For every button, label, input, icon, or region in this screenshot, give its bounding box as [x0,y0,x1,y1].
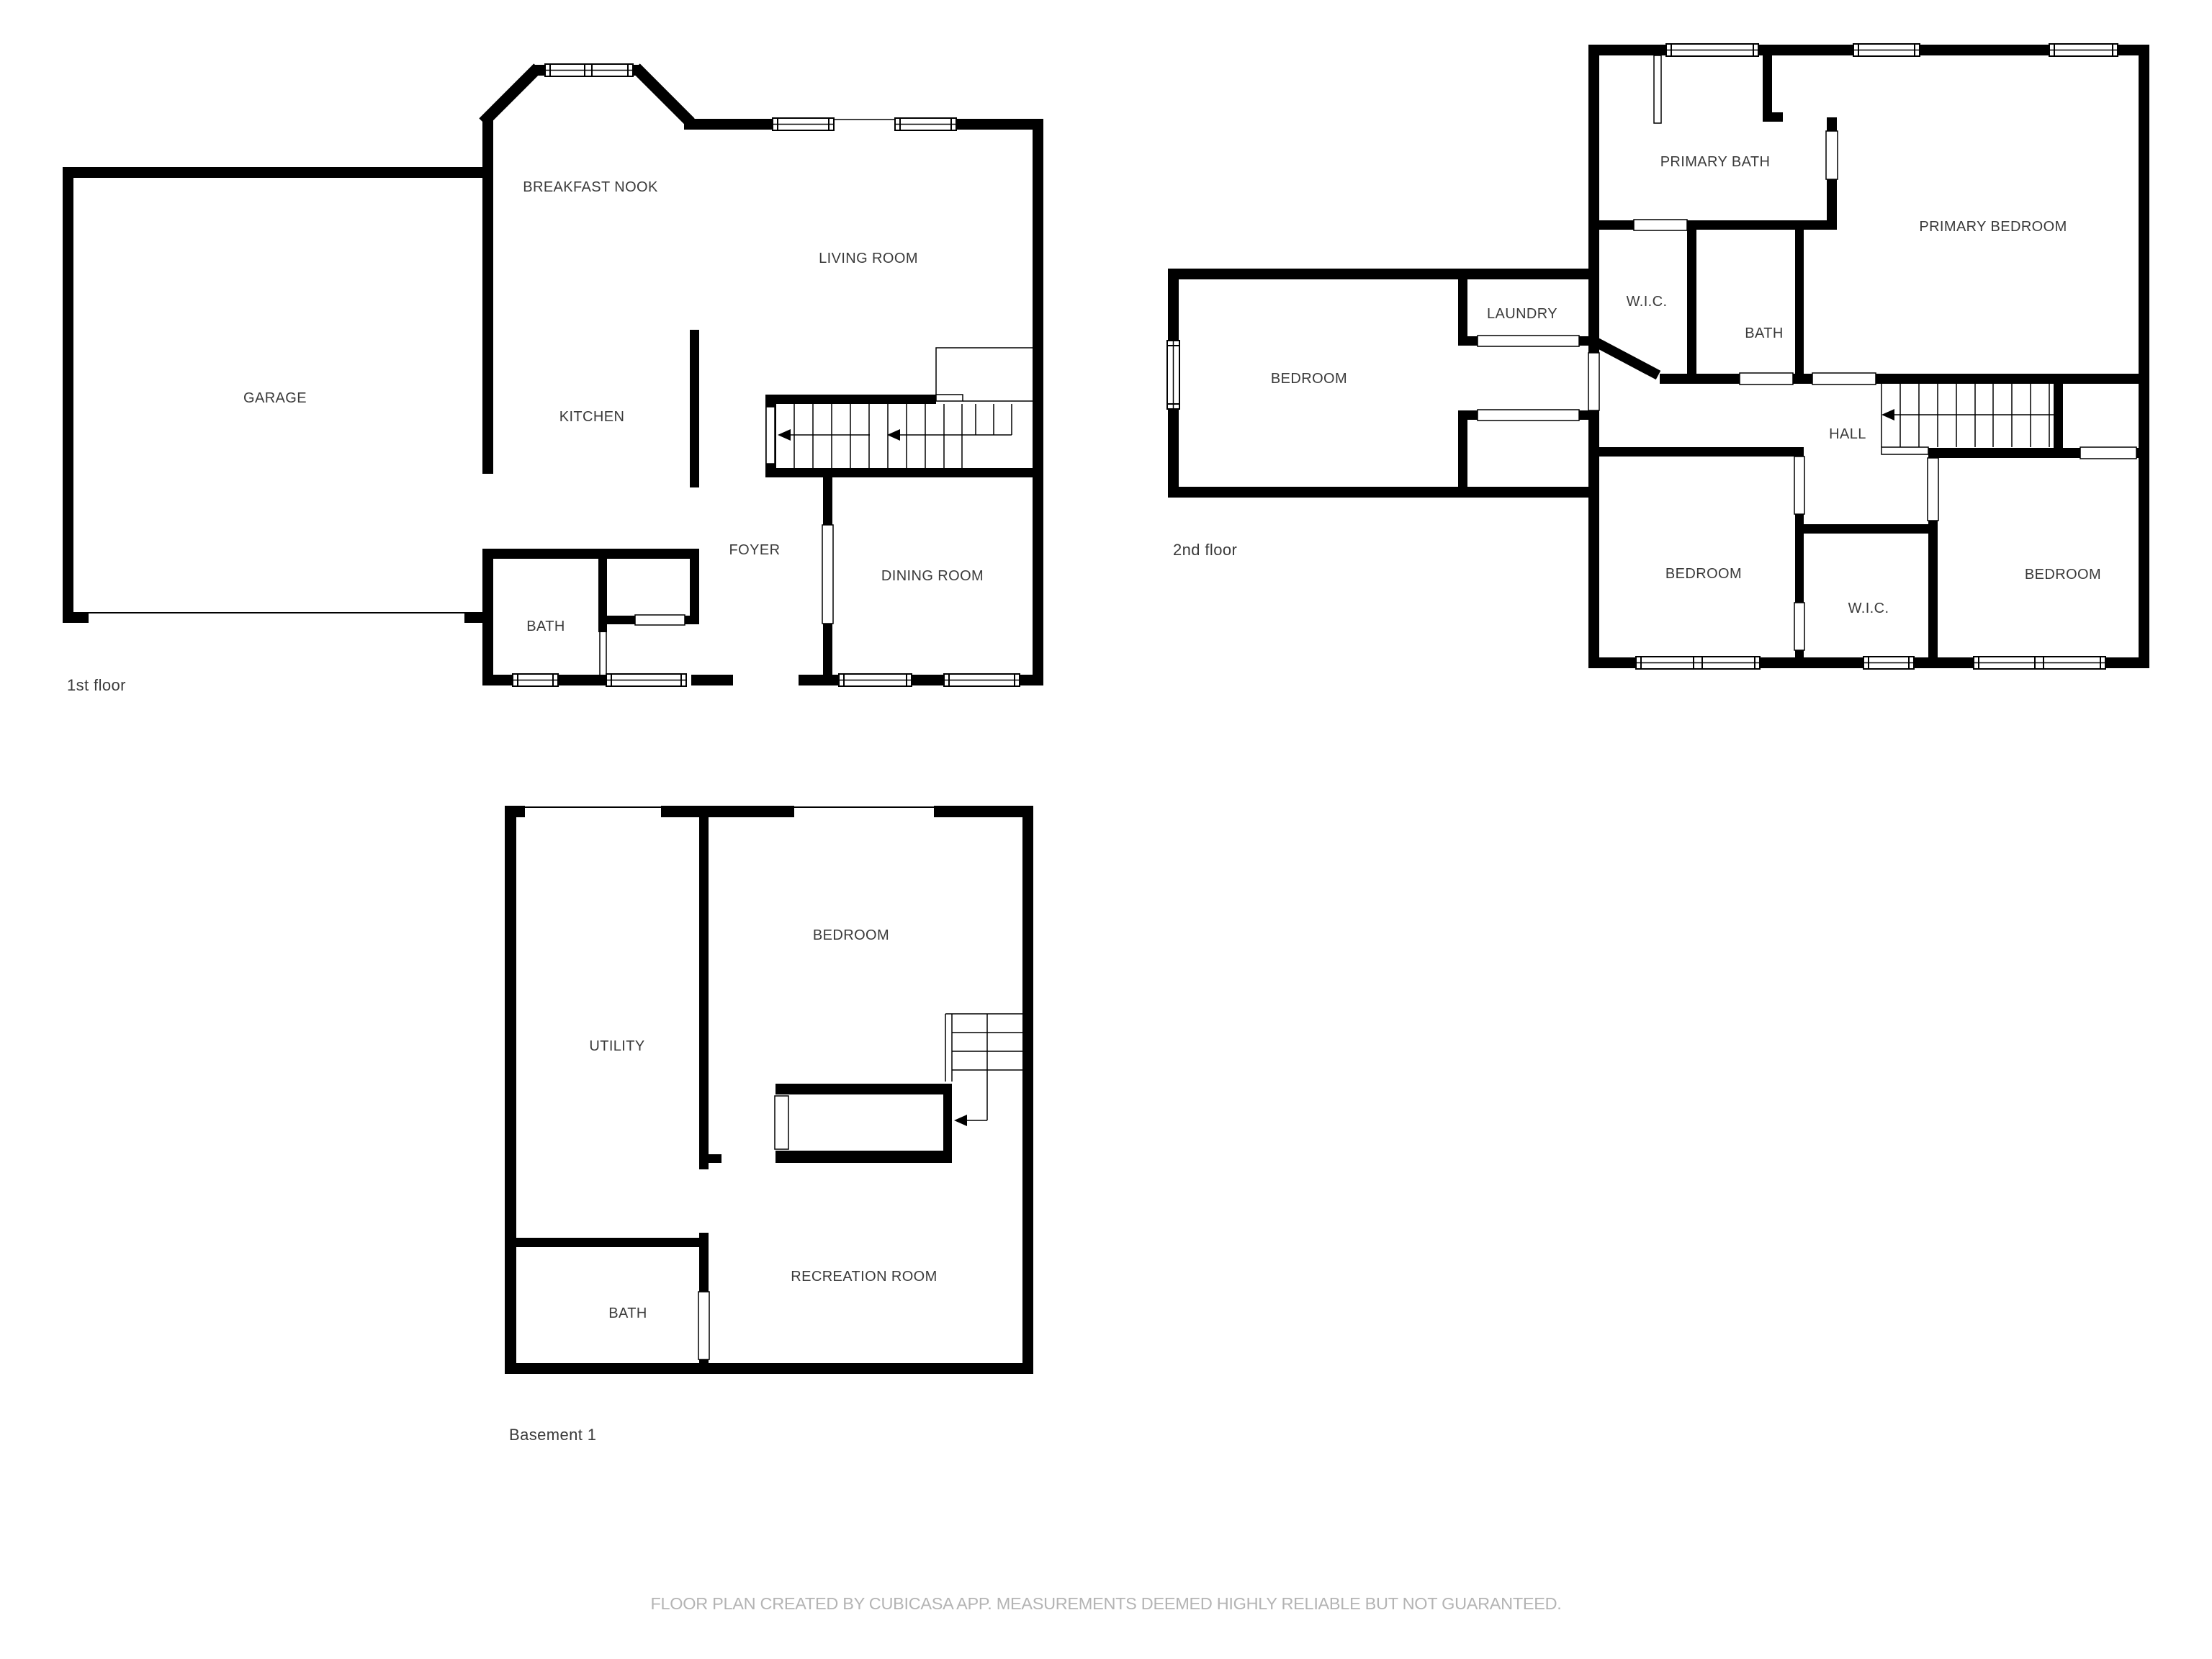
svg-text:W.I.C.: W.I.C. [1627,294,1668,310]
svg-text:Basement 1: Basement 1 [509,1426,596,1444]
svg-text:RECREATION ROOM: RECREATION ROOM [791,1269,937,1285]
svg-text:BEDROOM: BEDROOM [1271,371,1347,387]
svg-text:LAUNDRY: LAUNDRY [1487,306,1557,322]
svg-text:FLOOR PLAN CREATED BY CUBICASA: FLOOR PLAN CREATED BY CUBICASA APP. MEAS… [650,1594,1561,1613]
svg-text:BEDROOM: BEDROOM [1665,566,1742,582]
svg-text:BATH: BATH [526,619,565,634]
svg-text:PRIMARY BATH: PRIMARY BATH [1660,154,1771,170]
svg-text:DINING ROOM: DINING ROOM [881,568,984,584]
svg-text:HALL: HALL [1829,426,1866,442]
svg-text:2nd floor: 2nd floor [1173,541,1237,559]
svg-text:BEDROOM: BEDROOM [2025,567,2101,583]
svg-text:GARAGE: GARAGE [243,390,307,406]
svg-text:W.I.C.: W.I.C. [1848,601,1889,616]
svg-text:PRIMARY BEDROOM: PRIMARY BEDROOM [1919,219,2067,235]
svg-text:BREAKFAST NOOK: BREAKFAST NOOK [523,179,658,195]
svg-text:KITCHEN: KITCHEN [559,409,625,425]
svg-text:FOYER: FOYER [729,542,781,558]
svg-text:1st floor: 1st floor [67,676,126,694]
svg-text:LIVING ROOM: LIVING ROOM [819,251,918,266]
svg-text:BATH: BATH [608,1305,647,1321]
svg-text:BATH: BATH [1745,325,1783,341]
svg-text:UTILITY: UTILITY [589,1038,644,1054]
svg-text:BEDROOM: BEDROOM [813,927,889,943]
